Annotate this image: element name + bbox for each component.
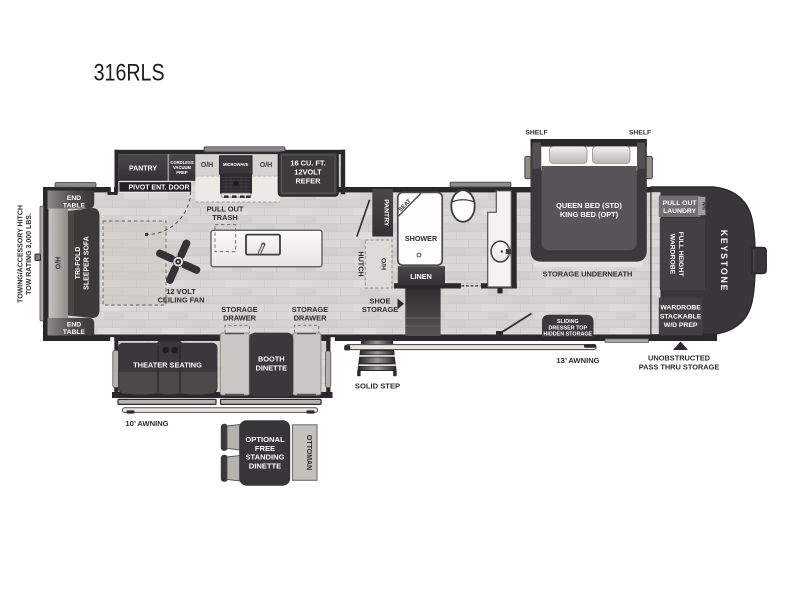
svg-text:CEILING FAN: CEILING FAN <box>158 296 205 305</box>
svg-text:SHELF: SHELF <box>525 130 547 137</box>
svg-text:16 CU. FT.: 16 CU. FT. <box>290 159 325 168</box>
svg-text:13’ AWNING: 13’ AWNING <box>556 356 599 365</box>
svg-text:WARDROBE: WARDROBE <box>660 305 701 312</box>
svg-text:TABLE: TABLE <box>63 329 86 336</box>
svg-text:HUTCH: HUTCH <box>357 251 366 276</box>
svg-text:OPTIONAL: OPTIONAL <box>245 435 285 444</box>
svg-text:10’ AWNING: 10’ AWNING <box>125 419 168 428</box>
svg-text:PASS THRU STORAGE: PASS THRU STORAGE <box>639 362 720 371</box>
svg-text:UNOBSTRUCTED: UNOBSTRUCTED <box>648 354 711 363</box>
svg-text:END: END <box>67 195 81 202</box>
svg-text:KEYSTONE: KEYSTONE <box>719 230 729 293</box>
svg-text:THEATER SEATING: THEATER SEATING <box>133 360 202 369</box>
svg-text:MICROWAVE: MICROWAVE <box>223 162 249 167</box>
svg-text:STACKABLE: STACKABLE <box>660 313 702 320</box>
svg-text:DINETTE: DINETTE <box>255 363 287 372</box>
svg-text:12VOLT: 12VOLT <box>294 168 322 177</box>
svg-text:HIDDEN STORAGE: HIDDEN STORAGE <box>543 332 592 338</box>
svg-text:DRAWER: DRAWER <box>223 313 257 322</box>
svg-text:LINEN: LINEN <box>410 272 432 281</box>
svg-text:O/H: O/H <box>380 258 387 270</box>
svg-text:STORAGE: STORAGE <box>362 305 398 314</box>
svg-text:STANDING: STANDING <box>245 453 284 462</box>
svg-text:DINETTE: DINETTE <box>249 461 282 470</box>
svg-text:TOWING/ACCESSORY HITCHTOW RATI: TOWING/ACCESSORY HITCHTOW RATING 3,000 L… <box>18 205 34 303</box>
svg-text:N/S: N/S <box>701 202 707 211</box>
svg-text:DRESSER TOP: DRESSER TOP <box>549 325 588 331</box>
svg-text:TRASH: TRASH <box>212 213 237 222</box>
svg-text:SLIDING: SLIDING <box>557 319 579 325</box>
svg-text:FREE: FREE <box>255 444 275 453</box>
svg-text:OTTOMAN: OTTOMAN <box>305 435 312 470</box>
svg-text:FULL HEIGHTWARDROBE: FULL HEIGHTWARDROBE <box>669 232 684 278</box>
svg-text:SHOWER: SHOWER <box>405 234 438 243</box>
svg-text:QUEEN BED (STD): QUEEN BED (STD) <box>556 201 622 210</box>
svg-text:REFER: REFER <box>295 177 321 186</box>
svg-text:SHELF: SHELF <box>629 130 651 137</box>
svg-text:PULL OUT: PULL OUT <box>663 200 698 207</box>
svg-text:O/H: O/H <box>260 162 272 169</box>
svg-text:O/H: O/H <box>201 162 213 169</box>
svg-text:PANTRY: PANTRY <box>129 165 157 172</box>
svg-text:PIVOT ENT. DOOR: PIVOT ENT. DOOR <box>128 185 189 192</box>
svg-text:LAUNDRY: LAUNDRY <box>663 208 696 215</box>
svg-text:PREP: PREP <box>176 170 188 175</box>
svg-text:BOOTH: BOOTH <box>258 354 285 363</box>
svg-text:O/H: O/H <box>56 257 63 269</box>
svg-text:SOLID STEP: SOLID STEP <box>355 381 400 390</box>
svg-text:STORAGE UNDERNEATH: STORAGE UNDERNEATH <box>543 269 633 278</box>
svg-text:KING BED (OPT): KING BED (OPT) <box>560 210 619 219</box>
svg-text:DRAWER: DRAWER <box>294 313 328 322</box>
svg-text:316RLS: 316RLS <box>94 60 165 87</box>
svg-text:W/D PREP: W/D PREP <box>664 322 698 329</box>
svg-text:END: END <box>67 321 81 328</box>
svg-text:PANTRY: PANTRY <box>383 199 390 227</box>
